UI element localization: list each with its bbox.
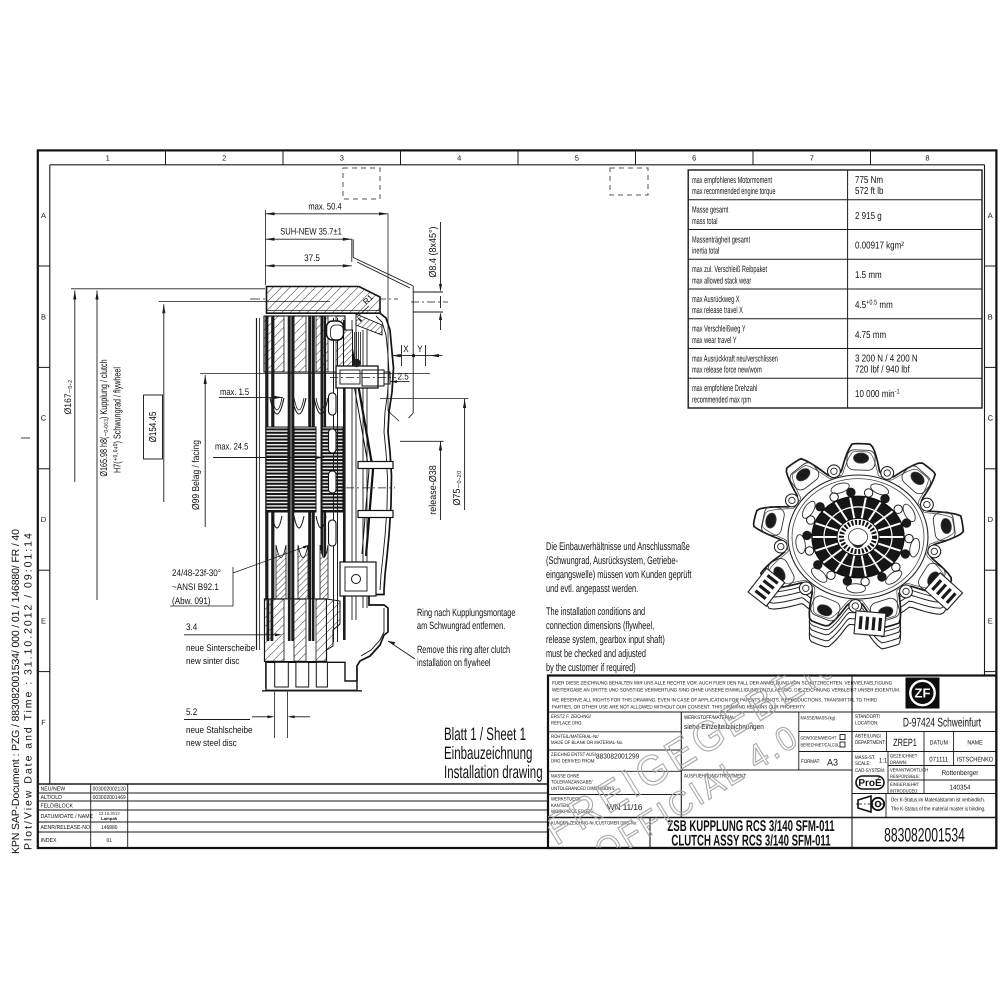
- svg-text:RESPONSIBLE:: RESPONSIBLE:: [890, 774, 920, 780]
- svg-text:Remove this ring after clutch: Remove this ring after clutch: [417, 644, 510, 656]
- svg-text:2 915 g: 2 915 g: [855, 211, 882, 222]
- svg-text:connection dimensions (flywhee: connection dimensions (flywheel,: [546, 620, 654, 632]
- svg-text:by the customer if required): by the customer if required): [546, 662, 636, 674]
- svg-text:REPLACE DRG:: REPLACE DRG:: [551, 720, 583, 726]
- svg-text:installation on flywheel: installation on flywheel: [417, 657, 491, 669]
- svg-text:eingangswelle) müssen vom Kund: eingangswelle) müssen vom Kunden geprüft: [546, 569, 691, 581]
- svg-text:Installation drawing: Installation drawing: [444, 762, 543, 782]
- svg-text:E: E: [41, 617, 46, 626]
- svg-text:ERSTZ F. ZEICHNG/: ERSTZ F. ZEICHNG/: [551, 714, 591, 720]
- svg-text:max. 24.5: max. 24.5: [215, 442, 248, 453]
- svg-text:5: 5: [575, 153, 579, 162]
- svg-text:0.00917 kgm²: 0.00917 kgm²: [855, 241, 904, 252]
- svg-text:MASSE/MASS-(kg): MASSE/MASS-(kg): [801, 716, 836, 722]
- svg-text:DEPARTMENT:: DEPARTMENT:: [855, 740, 886, 746]
- svg-text:Ø167₋₀.₂: Ø167₋₀.₂: [63, 379, 74, 414]
- svg-text:D: D: [988, 515, 994, 524]
- svg-text:ZREP1: ZREP1: [893, 737, 917, 749]
- svg-text:ProÉ: ProÉ: [858, 777, 882, 789]
- svg-text:mass total: mass total: [692, 216, 717, 226]
- svg-text:24/48-23f-30°: 24/48-23f-30°: [172, 568, 221, 579]
- svg-text:neue Sinterscheibe: neue Sinterscheibe: [186, 643, 255, 654]
- svg-text:Ø8.4 (8x45°): Ø8.4 (8x45°): [428, 226, 439, 277]
- svg-text:FELD/BLOCK: FELD/BLOCK: [41, 803, 74, 810]
- svg-text:AENR/RELEASE-NO.: AENR/RELEASE-NO.: [41, 824, 92, 831]
- svg-text:1.5 mm: 1.5 mm: [855, 270, 882, 281]
- svg-text:(Schwungrad, Ausrücksystem, Ge: (Schwungrad, Ausrücksystem, Getriebe-: [546, 555, 678, 567]
- svg-text:max release force new/worn: max release force new/worn: [692, 365, 762, 375]
- svg-text:A: A: [988, 211, 993, 220]
- svg-text:INDEX: INDEX: [41, 838, 57, 844]
- svg-text:WEITERGABE AN DRITTE UND SONST: WEITERGABE AN DRITTE UND SONSTIGE VERWER…: [552, 688, 900, 694]
- svg-text:146880: 146880: [101, 825, 118, 831]
- svg-text:D: D: [41, 515, 47, 524]
- svg-text:The installation conditions an: The installation conditions and: [546, 606, 645, 618]
- svg-text:Der K-Status im Materialstamm: Der K-Status im Materialstamm ist verbin…: [891, 797, 985, 804]
- svg-text:MADE OF BLANK OR MATERIAL-No.: MADE OF BLANK OR MATERIAL-No.: [551, 740, 623, 746]
- svg-text:GEZEICHNET: GEZEICHNET: [890, 754, 917, 760]
- svg-text:7: 7: [810, 153, 814, 162]
- svg-text:B: B: [41, 312, 46, 321]
- svg-text:The K-Status of the material m: The K-Status of the material master is b…: [891, 806, 986, 813]
- svg-text:37.5: 37.5: [304, 253, 320, 264]
- svg-text:Ø99 Belag / facing: Ø99 Belag / facing: [191, 440, 202, 510]
- svg-text:max Ausrückkraft neu/verschlis: max Ausrückkraft neu/verschlissen: [692, 353, 778, 363]
- svg-text:F: F: [41, 718, 46, 727]
- svg-text:MASSE OHNE: MASSE OHNE: [551, 774, 580, 780]
- svg-text:CLUTCH ASSY RCS 3/140 SFM-011: CLUTCH ASSY RCS 3/140 SFM-011: [671, 833, 830, 850]
- svg-text:recommended max rpm: recommended max rpm: [692, 394, 751, 404]
- svg-text:NAME: NAME: [967, 740, 982, 747]
- svg-text:5.2: 5.2: [186, 707, 197, 718]
- svg-text:DATUM/DATE / NAME: DATUM/DATE / NAME: [41, 813, 94, 820]
- svg-text:D-97424 Schweinfurt: D-97424 Schweinfurt: [903, 716, 982, 730]
- svg-text:must be checked and adjusted: must be checked and adjusted: [546, 648, 646, 660]
- svg-text:max recommended engine torque: max recommended engine torque: [692, 186, 775, 196]
- svg-text:003002001469: 003002001469: [93, 795, 126, 801]
- svg-text:release-Ø38: release-Ø38: [428, 465, 439, 515]
- svg-text:B: B: [988, 312, 993, 321]
- svg-text:GEWOGEN/WEIGHT: GEWOGEN/WEIGHT: [801, 736, 837, 742]
- svg-text:720 lbf / 940 lbf: 720 lbf / 940 lbf: [855, 365, 910, 376]
- svg-text:max empfohlene Drehzahl: max empfohlene Drehzahl: [692, 383, 757, 393]
- svg-text:Masse gesamt: Masse gesamt: [692, 205, 729, 215]
- svg-text:SCALE:: SCALE:: [855, 761, 871, 767]
- svg-text:am Schwungrad entfernen.: am Schwungrad entfernen.: [417, 620, 505, 632]
- svg-text:EINGEFUEHRT: EINGEFUEHRT: [890, 782, 919, 788]
- svg-text:max zul. Verschleiß Reibpaket: max zul. Verschleiß Reibpaket: [692, 264, 767, 274]
- svg-text:X: X: [403, 344, 409, 355]
- svg-text:Lampah: Lampah: [101, 816, 117, 821]
- svg-text:~ANSI B92.1: ~ANSI B92.1: [172, 582, 219, 593]
- svg-text:ZF: ZF: [915, 686, 931, 701]
- svg-text:Ring nach Kupplungsmontage: Ring nach Kupplungsmontage: [417, 607, 516, 619]
- svg-text:Ø154.45: Ø154.45: [148, 411, 159, 442]
- svg-text:STANDORT/: STANDORT/: [855, 714, 881, 720]
- svg-text:1: 1: [106, 153, 110, 162]
- svg-text:10 000 min-1: 10 000 min-1: [855, 389, 900, 401]
- svg-text:01: 01: [106, 838, 112, 844]
- svg-text:max Ausrückweg X: max Ausrückweg X: [692, 294, 739, 304]
- svg-text:Ø75₋₀.₂₀: Ø75₋₀.₂₀: [452, 470, 463, 505]
- svg-text:DRG DERIVED FROM:: DRG DERIVED FROM:: [551, 758, 595, 764]
- svg-text:NEU/NEW: NEU/NEW: [41, 786, 66, 793]
- svg-text:ABTEILUNG/: ABTEILUNG/: [855, 734, 882, 740]
- svg-text:140354: 140354: [949, 785, 970, 792]
- svg-text:Einbauzeichnung: Einbauzeichnung: [444, 743, 532, 763]
- svg-text:CAD-SYSTEM:: CAD-SYSTEM:: [855, 768, 885, 774]
- svg-text:SUH-NEW 35.7±1: SUH-NEW 35.7±1: [280, 227, 342, 238]
- svg-text:H7(⁺⁰·⁰⁴⁰) Schwungrad / flywhe: H7(⁺⁰·⁰⁴⁰) Schwungrad / flywheel: [113, 367, 124, 473]
- svg-text:3 200 N / 4 200 N: 3 200 N / 4 200 N: [855, 353, 918, 364]
- svg-text:C: C: [41, 414, 47, 423]
- svg-text:VERANTWORTLICH: VERANTWORTLICH: [890, 768, 929, 774]
- svg-text:Massenträgheit gesamt: Massenträgheit gesamt: [692, 234, 750, 244]
- svg-text:A: A: [41, 211, 46, 220]
- svg-text:C: C: [988, 414, 994, 423]
- svg-text:(Abw. 091): (Abw. 091): [172, 596, 211, 607]
- svg-text:775 Nm: 775 Nm: [855, 175, 883, 186]
- svg-text:Rottenberger: Rottenberger: [942, 769, 979, 777]
- svg-text:max Verschleißweg Y: max Verschleißweg Y: [692, 324, 746, 334]
- svg-text:ROHTEIL/MATERIAL-Nr/: ROHTEIL/MATERIAL-Nr/: [551, 734, 599, 740]
- svg-text:3.4: 3.4: [186, 622, 197, 633]
- svg-text:A3: A3: [827, 758, 838, 769]
- svg-text:max allowed stack wear: max allowed stack wear: [692, 275, 751, 285]
- svg-text:Blatt 1 / Sheet 1: Blatt 1 / Sheet 1: [444, 724, 526, 744]
- svg-text:Die Einbauverhältnisse und Ans: Die Einbauverhältnisse und Anschlussmaße: [546, 541, 690, 553]
- svg-text:WE RESERVE ALL RIGHTS FOR THIS: WE RESERVE ALL RIGHTS FOR THIS DRAWING. …: [552, 698, 878, 704]
- svg-text:8: 8: [925, 153, 929, 162]
- svg-text:3: 3: [340, 153, 344, 162]
- svg-text:2: 2: [222, 153, 226, 162]
- svg-text:release system, gearbox input: release system, gearbox input shaft): [546, 634, 665, 646]
- svg-text:Plot/View Date and Time : 31.1: Plot/View Date and Time : 31.10.2012 / 0…: [23, 532, 35, 850]
- svg-text:new steel disc: new steel disc: [186, 738, 237, 749]
- svg-text:ZEICHNG ENTST AUS/: ZEICHNG ENTST AUS/: [551, 752, 597, 758]
- svg-text:071111: 071111: [929, 757, 948, 764]
- svg-text:INTRODUCED:: INTRODUCED:: [890, 788, 918, 794]
- svg-text:new sinter disc: new sinter disc: [186, 656, 240, 667]
- svg-text:Ø165.98 h8(₋₀.₀₆₃) Kupplung /: Ø165.98 h8(₋₀.₀₆₃) Kupplung / clutch: [99, 359, 110, 476]
- svg-text:4: 4: [457, 153, 461, 162]
- svg-text:4.75 mm: 4.75 mm: [855, 330, 886, 341]
- svg-text:und evtl. angepasst werden.: und evtl. angepasst werden.: [546, 583, 638, 595]
- svg-text:LOCATION:: LOCATION:: [855, 720, 878, 726]
- svg-text:KPN SAP-Document : PZG / 88308: KPN SAP-Document : PZG / 883082001534/ 0…: [10, 528, 22, 854]
- svg-text:1:1: 1:1: [879, 758, 887, 765]
- svg-text:neue Stahlscheibe: neue Stahlscheibe: [186, 725, 252, 736]
- svg-text:2.5: 2.5: [398, 372, 409, 383]
- svg-text:DRAWN:: DRAWN:: [890, 760, 907, 766]
- svg-text:003002002120: 003002002120: [93, 787, 126, 793]
- svg-text:max release travel X: max release travel X: [692, 305, 743, 315]
- svg-text:DATUM: DATUM: [930, 740, 948, 747]
- svg-text:BERECHNET/CALCUL: BERECHNET/CALCUL: [801, 743, 840, 749]
- svg-text:max. 1.5: max. 1.5: [220, 387, 249, 398]
- svg-text:572 ft lb: 572 ft lb: [855, 186, 884, 197]
- svg-text:E: E: [988, 617, 993, 626]
- svg-text:max. 50.4: max. 50.4: [308, 202, 341, 213]
- svg-text:max empfohlenes Motormoment: max empfohlenes Motormoment: [692, 175, 772, 185]
- svg-text:ISTSCHENKO: ISTSCHENKO: [957, 757, 993, 764]
- svg-text:883082001534: 883082001534: [884, 825, 965, 847]
- svg-text:inertia total: inertia total: [692, 246, 719, 256]
- svg-text:max wear travel Y: max wear travel Y: [692, 335, 737, 345]
- svg-text:6: 6: [692, 153, 696, 162]
- svg-text:ALT/OLD: ALT/OLD: [41, 794, 62, 801]
- svg-text:Y: Y: [417, 344, 423, 355]
- svg-text:FORMAT:: FORMAT:: [801, 759, 820, 765]
